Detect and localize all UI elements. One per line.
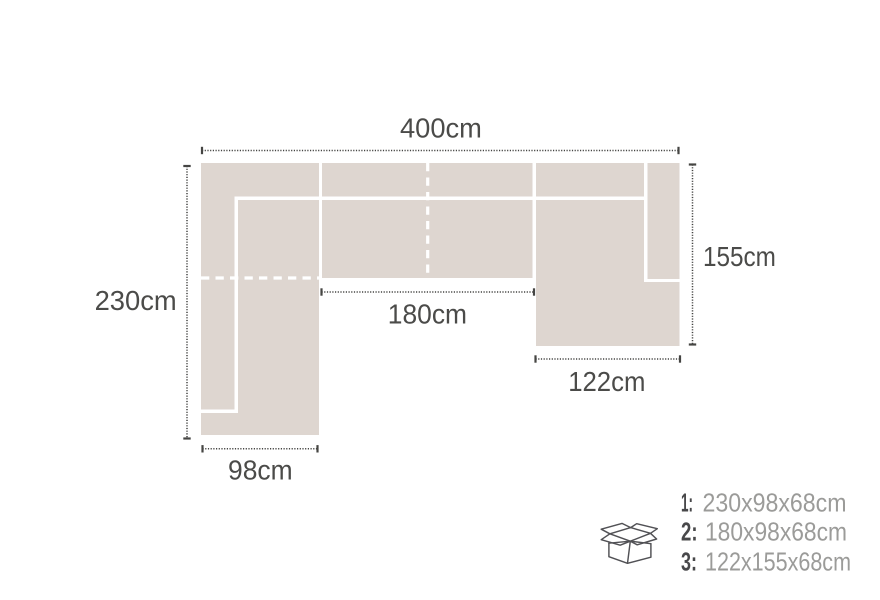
- svg-text:230cm: 230cm: [95, 285, 177, 316]
- svg-text:98cm: 98cm: [228, 455, 293, 486]
- svg-text:2:: 2:: [681, 517, 698, 547]
- svg-text:3:: 3:: [681, 547, 697, 577]
- svg-text:122cm: 122cm: [568, 366, 645, 397]
- svg-text:400cm: 400cm: [400, 113, 482, 144]
- svg-text:122x155x68cm: 122x155x68cm: [705, 547, 851, 577]
- svg-text:180x98x68cm: 180x98x68cm: [705, 517, 847, 547]
- svg-text:1:: 1:: [681, 488, 693, 518]
- svg-text:155cm: 155cm: [703, 241, 776, 272]
- svg-text:230x98x68cm: 230x98x68cm: [703, 488, 847, 518]
- svg-text:180cm: 180cm: [388, 299, 467, 330]
